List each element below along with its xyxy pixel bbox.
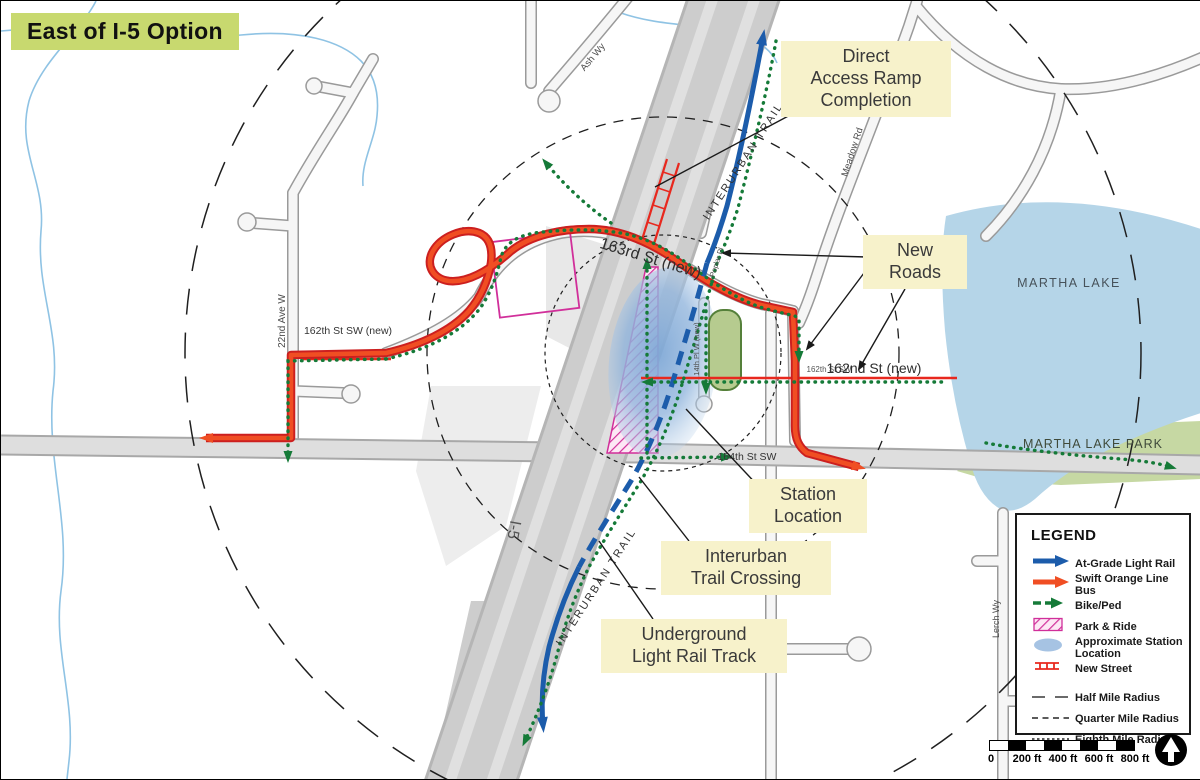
callout-interurban-trail-crossing: Interurban Trail Crossing bbox=[661, 541, 831, 595]
legend-item-new-street: New Street bbox=[1031, 658, 1189, 679]
legend-item-station-location: Approximate Station Location bbox=[1031, 637, 1189, 658]
swift-bus-route bbox=[206, 229, 859, 467]
callout-direct-access-ramp: Direct Access Ramp Completion bbox=[781, 41, 951, 117]
martha-lake-park-label: MARTHA LAKE PARK bbox=[1023, 437, 1163, 451]
scale-bar-segments bbox=[989, 740, 1135, 751]
legend-item-bike-ped: Bike/Ped bbox=[1031, 595, 1189, 616]
swift-bus-casing bbox=[206, 229, 859, 467]
map-title: East of I-5 Option bbox=[11, 13, 239, 50]
scale-label-0: 0 bbox=[988, 753, 994, 765]
swift-bus-arrow-icon bbox=[1031, 575, 1075, 594]
scale-label-400: 400 ft bbox=[1049, 753, 1078, 765]
i5-label: I-5 bbox=[503, 519, 523, 540]
14th-pl-w-label: 14th Pl W (new) bbox=[692, 322, 701, 376]
north-arrow-icon bbox=[1153, 732, 1189, 768]
light-rail-arrow-icon bbox=[1031, 554, 1075, 573]
legend-item-half-mile: Half Mile Radius bbox=[1031, 687, 1189, 708]
new-street-ladder-icon bbox=[1031, 659, 1075, 678]
scale-label-600: 600 ft bbox=[1085, 753, 1114, 765]
legend-item-park-ride: Park & Ride bbox=[1031, 616, 1189, 637]
quarter-mile-line-icon bbox=[1031, 710, 1075, 728]
legend: LEGEND At-Grade Light Rail Swift Orange … bbox=[1015, 513, 1191, 735]
legend-title: LEGEND bbox=[1031, 527, 1189, 544]
scale-label-200: 200 ft bbox=[1013, 753, 1042, 765]
callout-station-location: Station Location bbox=[749, 479, 867, 533]
scale-bar: 0 200 ft 400 ft 600 ft 800 ft bbox=[989, 740, 1159, 767]
park-ride-hatch-icon bbox=[1031, 617, 1075, 637]
legend-item-light-rail: At-Grade Light Rail bbox=[1031, 553, 1189, 574]
map-stage: Ash Wy Meadow Rd INTERURBAN TRAIL INTERU… bbox=[0, 0, 1200, 780]
station-ellipse-icon bbox=[1031, 637, 1075, 658]
scale-bar-labels: 0 200 ft 400 ft 600 ft 800 ft bbox=[989, 753, 1149, 767]
bike-ped-arrow-icon bbox=[1031, 596, 1075, 615]
162th-st-sw-new-label: 162th St SW (new) bbox=[304, 325, 392, 337]
half-mile-line-icon bbox=[1031, 689, 1075, 707]
scale-label-800: 800 ft bbox=[1121, 753, 1150, 765]
martha-lake-label: MARTHA LAKE bbox=[1017, 276, 1121, 290]
callout-underground-light-rail: Underground Light Rail Track bbox=[601, 619, 787, 673]
lerch-wy-label: Lerch Wy bbox=[991, 600, 1001, 638]
callout-new-roads: New Roads bbox=[863, 235, 967, 289]
22nd-ave-w-label: 22nd Ave W bbox=[277, 294, 288, 348]
162nd-st-new-label: 162nd St (new) bbox=[827, 360, 922, 376]
legend-item-swift-bus: Swift Orange Line Bus bbox=[1031, 574, 1189, 595]
legend-item-quarter-mile: Quarter Mile Radius bbox=[1031, 708, 1189, 729]
